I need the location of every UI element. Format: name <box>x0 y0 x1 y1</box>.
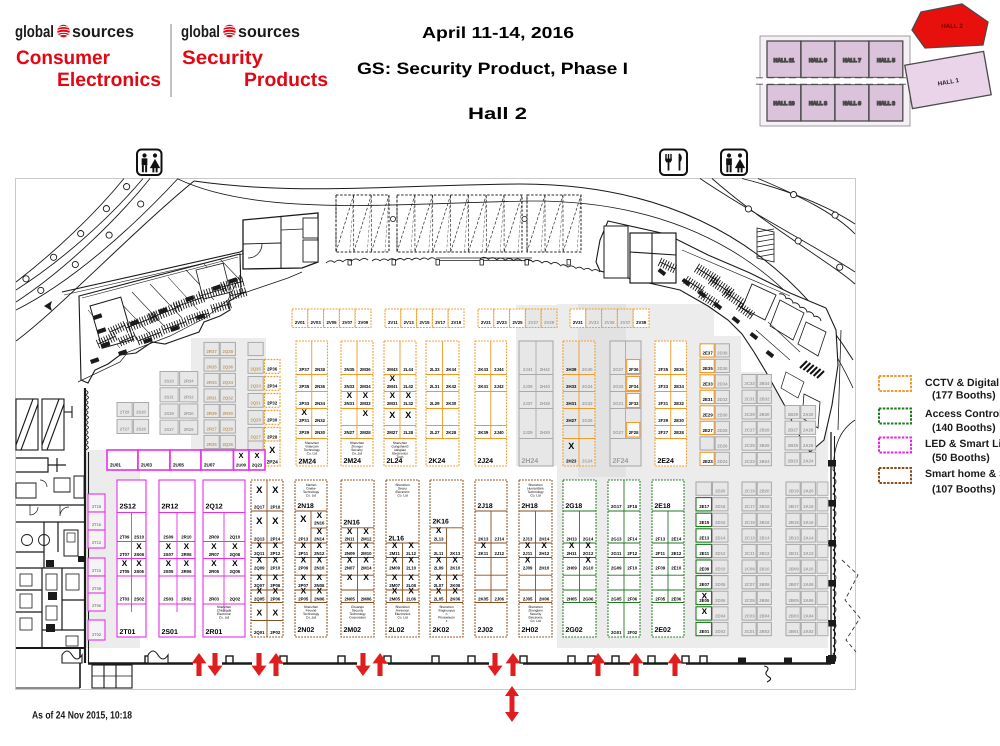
svg-text:2P33: 2P33 <box>299 401 310 406</box>
svg-text:2R08: 2R08 <box>181 552 192 557</box>
svg-text:X: X <box>232 542 238 551</box>
svg-text:2K28: 2K28 <box>446 430 457 435</box>
svg-text:2B09: 2B09 <box>789 567 800 572</box>
svg-text:X: X <box>436 587 442 596</box>
svg-text:2G13: 2G13 <box>611 537 622 542</box>
svg-text:2C15: 2C15 <box>745 520 756 525</box>
svg-text:2G32: 2G32 <box>582 401 593 406</box>
svg-text:2Q17: 2Q17 <box>254 504 265 509</box>
svg-text:X: X <box>301 587 307 596</box>
svg-text:2P35: 2P35 <box>299 384 310 389</box>
svg-text:2D16: 2D16 <box>715 520 726 525</box>
svg-text:2E13: 2E13 <box>699 535 710 540</box>
svg-text:2G31: 2G31 <box>613 401 624 406</box>
svg-text:2K06: 2K06 <box>450 596 461 601</box>
svg-text:2Q05: 2Q05 <box>254 596 265 601</box>
svg-text:2J39: 2J39 <box>523 384 533 389</box>
svg-text:2S02: 2S02 <box>134 597 145 602</box>
svg-text:X: X <box>317 541 323 550</box>
svg-text:2B16: 2B16 <box>759 520 770 525</box>
svg-text:2C33: 2C33 <box>745 381 756 386</box>
svg-text:2F09: 2F09 <box>655 566 665 571</box>
svg-text:X: X <box>452 573 458 582</box>
svg-text:2C11: 2C11 <box>745 551 756 556</box>
svg-text:2B04: 2B04 <box>759 613 770 618</box>
svg-text:2V13: 2V13 <box>404 320 415 325</box>
svg-text:2L27: 2L27 <box>430 430 440 435</box>
svg-text:X: X <box>273 573 279 582</box>
svg-text:X: X <box>317 511 323 520</box>
svg-text:X: X <box>702 607 708 616</box>
svg-text:2V25: 2V25 <box>512 320 523 325</box>
svg-text:2V27: 2V27 <box>528 320 539 325</box>
svg-text:2S27: 2S27 <box>164 427 174 432</box>
svg-text:2J14: 2J14 <box>495 537 505 542</box>
svg-text:2H09: 2H09 <box>566 566 577 571</box>
svg-text:2R27: 2R27 <box>206 426 217 431</box>
svg-text:2C03: 2C03 <box>745 613 756 618</box>
svg-text:2M31: 2M31 <box>387 401 398 406</box>
svg-text:X: X <box>392 541 398 550</box>
svg-text:2Q36: 2Q36 <box>223 364 234 369</box>
svg-text:2T06: 2T06 <box>92 603 102 608</box>
svg-text:HALL 9: HALL 9 <box>809 58 827 64</box>
svg-text:HALL 5: HALL 5 <box>877 58 895 64</box>
svg-text:2G27: 2G27 <box>613 430 624 435</box>
svg-text:X: X <box>408 541 414 550</box>
svg-text:2C29: 2C29 <box>745 412 756 417</box>
svg-text:X: X <box>525 541 531 550</box>
svg-text:X: X <box>238 451 243 460</box>
svg-text:2V23: 2V23 <box>497 320 508 325</box>
svg-text:2A08: 2A08 <box>803 582 814 587</box>
svg-text:X: X <box>541 541 547 550</box>
svg-text:HALL 10: HALL 10 <box>774 101 795 107</box>
svg-text:2P36: 2P36 <box>267 366 278 371</box>
svg-text:X: X <box>256 608 262 618</box>
svg-text:2D30: 2D30 <box>717 412 728 417</box>
svg-text:2R05: 2R05 <box>209 569 220 574</box>
svg-text:2J24: 2J24 <box>478 458 494 465</box>
svg-text:2R37: 2R37 <box>206 349 217 354</box>
svg-text:2J44: 2J44 <box>494 367 504 372</box>
svg-text:2T12: 2T12 <box>92 540 102 545</box>
svg-text:(107 Booths): (107 Booths) <box>932 484 996 496</box>
svg-text:2S28: 2S28 <box>136 426 146 431</box>
svg-text:2S10: 2S10 <box>134 535 145 540</box>
svg-text:X: X <box>405 410 411 420</box>
svg-text:2A18: 2A18 <box>803 504 814 509</box>
svg-text:HALL 2: HALL 2 <box>941 23 963 30</box>
svg-text:X: X <box>136 559 142 568</box>
svg-text:2P29: 2P29 <box>299 430 310 435</box>
svg-text:X: X <box>436 526 442 535</box>
svg-text:2E31: 2E31 <box>703 397 714 402</box>
svg-text:2V35: 2V35 <box>604 320 615 325</box>
svg-text:2C27: 2C27 <box>745 428 756 433</box>
svg-text:X: X <box>585 541 591 550</box>
svg-text:2S09: 2S09 <box>163 535 174 540</box>
svg-text:2Q09: 2Q09 <box>254 566 265 571</box>
svg-text:2Q29: 2Q29 <box>250 417 261 422</box>
svg-text:2R28: 2R28 <box>184 427 195 432</box>
svg-text:2S05: 2S05 <box>163 569 174 574</box>
svg-text:2B13: 2B13 <box>789 535 800 540</box>
svg-text:2R34: 2R34 <box>184 379 195 384</box>
svg-text:2D36: 2D36 <box>717 366 728 371</box>
svg-text:2B10: 2B10 <box>759 567 770 572</box>
svg-text:2J09: 2J09 <box>523 566 533 571</box>
svg-text:X: X <box>392 573 398 582</box>
svg-text:X: X <box>301 573 307 582</box>
svg-text:2S08: 2S08 <box>134 552 145 557</box>
svg-text:2G05: 2G05 <box>611 596 622 601</box>
svg-text:2R07: 2R07 <box>209 552 220 557</box>
svg-text:GS: Security Product, Phase I: GS: Security Product, Phase I <box>357 60 628 78</box>
svg-text:Co. Ltd: Co. Ltd <box>397 616 408 620</box>
svg-text:2E34: 2E34 <box>674 384 685 389</box>
svg-text:HALL 7: HALL 7 <box>843 58 861 64</box>
svg-text:2K02: 2K02 <box>433 627 450 634</box>
svg-text:global: global <box>181 23 220 41</box>
svg-text:X: X <box>363 527 369 536</box>
svg-text:Corporation: Corporation <box>349 616 366 620</box>
svg-text:2T03: 2T03 <box>120 597 130 602</box>
svg-text:2S33: 2S33 <box>164 379 174 384</box>
svg-text:2R06: 2R06 <box>181 569 192 574</box>
svg-text:2C09: 2C09 <box>745 567 756 572</box>
svg-text:X: X <box>389 410 395 420</box>
svg-text:2R01: 2R01 <box>206 629 223 636</box>
svg-text:2A06: 2A06 <box>803 598 814 603</box>
svg-text:global: global <box>15 23 54 41</box>
svg-text:2B32: 2B32 <box>759 396 770 401</box>
svg-text:Electronics: Electronics <box>57 69 161 91</box>
svg-text:Products: Products <box>244 69 328 91</box>
svg-text:2C05: 2C05 <box>745 598 756 603</box>
svg-text:2E27: 2E27 <box>703 428 714 433</box>
svg-text:X: X <box>363 556 369 565</box>
svg-text:2E30: 2E30 <box>674 418 685 423</box>
svg-text:2V09: 2V09 <box>358 320 369 325</box>
svg-text:2P05: 2P05 <box>298 596 309 601</box>
svg-text:2R12: 2R12 <box>162 504 179 511</box>
svg-text:2C25: 2C25 <box>745 443 756 448</box>
svg-text:2E12: 2E12 <box>671 551 682 556</box>
svg-text:2K10: 2K10 <box>450 566 461 571</box>
svg-text:2V21: 2V21 <box>481 320 492 325</box>
svg-text:2N07: 2N07 <box>344 566 355 571</box>
svg-text:2M27: 2M27 <box>387 430 398 435</box>
svg-text:X: X <box>317 573 323 582</box>
svg-text:2N18: 2N18 <box>298 503 314 510</box>
svg-text:2F02: 2F02 <box>627 630 637 635</box>
svg-text:2G02: 2G02 <box>566 627 583 634</box>
svg-text:2R09: 2R09 <box>209 535 220 540</box>
svg-text:2T07: 2T07 <box>120 552 130 557</box>
svg-text:2G34: 2G34 <box>582 384 593 389</box>
svg-text:HALL 11: HALL 11 <box>774 58 795 64</box>
svg-text:2B26: 2B26 <box>759 443 770 448</box>
svg-text:2D18: 2D18 <box>715 504 726 509</box>
svg-text:2A28: 2A28 <box>803 427 814 432</box>
svg-text:X: X <box>273 587 279 596</box>
svg-text:2F33: 2F33 <box>658 384 668 389</box>
svg-text:2L05: 2L05 <box>434 596 444 601</box>
svg-text:2E37: 2E37 <box>703 350 714 355</box>
svg-text:X: X <box>232 559 238 568</box>
svg-text:HALL 8: HALL 8 <box>809 101 827 107</box>
svg-text:2Q31: 2Q31 <box>250 400 261 405</box>
svg-text:2U01: 2U01 <box>110 463 121 468</box>
svg-text:2U09: 2U09 <box>236 463 247 468</box>
svg-text:As of 24 Nov 2015, 10:18: As of 24 Nov 2015, 10:18 <box>32 710 132 722</box>
svg-text:2G37: 2G37 <box>613 367 624 372</box>
svg-text:2V33: 2V33 <box>589 320 600 325</box>
svg-text:2N16: 2N16 <box>344 520 360 527</box>
svg-text:LED & Smart Lighting: LED & Smart Lighting <box>925 438 1000 450</box>
svg-text:2D04: 2D04 <box>715 613 726 618</box>
svg-text:2F11: 2F11 <box>656 551 666 556</box>
svg-text:X: X <box>392 587 398 596</box>
svg-text:2Q34: 2Q34 <box>223 380 234 385</box>
svg-text:2H18: 2H18 <box>522 503 538 510</box>
svg-text:X: X <box>300 514 307 525</box>
svg-text:X: X <box>363 409 369 418</box>
svg-text:2E14: 2E14 <box>671 537 682 542</box>
svg-text:X: X <box>408 587 414 596</box>
svg-text:2L24: 2L24 <box>387 458 403 465</box>
svg-text:X: X <box>317 527 323 536</box>
svg-text:2D28: 2D28 <box>717 428 728 433</box>
svg-text:2H42: 2H42 <box>540 367 551 372</box>
svg-text:2D14: 2D14 <box>715 535 726 540</box>
svg-text:2J37: 2J37 <box>523 401 533 406</box>
svg-text:2A10: 2A10 <box>803 567 814 572</box>
svg-text:2F34: 2F34 <box>629 384 639 389</box>
svg-text:Access Control: Access Control <box>925 408 1000 420</box>
svg-text:2N05: 2N05 <box>344 596 355 601</box>
svg-text:2D26: 2D26 <box>717 443 728 448</box>
svg-text:X: X <box>136 542 142 551</box>
svg-text:2F10: 2F10 <box>627 566 637 571</box>
svg-text:X: X <box>390 391 396 400</box>
svg-text:2F36: 2F36 <box>629 367 639 372</box>
svg-text:2D24: 2D24 <box>717 459 728 464</box>
svg-text:X: X <box>585 556 591 565</box>
svg-text:2T10: 2T10 <box>92 568 102 573</box>
svg-text:2M06: 2M06 <box>361 596 372 601</box>
svg-text:2E11: 2E11 <box>699 551 709 556</box>
svg-text:X: X <box>184 542 190 551</box>
svg-text:2B25: 2B25 <box>788 443 799 448</box>
svg-text:X: X <box>257 573 263 582</box>
svg-text:2M02: 2M02 <box>344 627 362 634</box>
svg-text:2B24: 2B24 <box>759 459 770 464</box>
svg-text:2E10: 2E10 <box>671 566 682 571</box>
svg-text:Co.,Ltd: Co.,Ltd <box>306 616 317 620</box>
svg-text:2J12: 2J12 <box>495 551 505 556</box>
svg-text:X: X <box>269 445 275 455</box>
svg-text:2H39: 2H39 <box>566 367 577 372</box>
svg-text:Security: Security <box>182 47 263 69</box>
svg-text:2F27: 2F27 <box>658 430 668 435</box>
svg-text:2F28: 2F28 <box>629 430 639 435</box>
svg-text:2F35: 2F35 <box>658 367 668 372</box>
svg-text:2P34: 2P34 <box>267 383 278 388</box>
svg-text:2L09: 2L09 <box>434 566 444 571</box>
svg-text:2E32: 2E32 <box>674 401 685 406</box>
svg-text:2G40: 2G40 <box>582 367 593 372</box>
svg-text:X: X <box>569 541 575 550</box>
svg-text:X: X <box>392 556 398 565</box>
svg-text:2L44: 2L44 <box>403 367 413 372</box>
svg-text:2E02: 2E02 <box>655 627 671 634</box>
svg-text:2H12: 2H12 <box>539 551 550 556</box>
svg-text:2F12: 2F12 <box>627 551 637 556</box>
svg-text:2F13: 2F13 <box>655 537 665 542</box>
svg-text:2F06: 2F06 <box>627 596 637 601</box>
svg-text:2P31: 2P31 <box>299 418 310 423</box>
svg-text:2V39: 2V39 <box>636 320 647 325</box>
svg-text:X: X <box>317 556 323 565</box>
svg-text:X: X <box>347 541 353 550</box>
svg-text:2V11: 2V11 <box>388 320 398 325</box>
svg-text:2R33: 2R33 <box>206 380 217 385</box>
svg-text:2T05: 2T05 <box>120 569 130 574</box>
svg-text:X: X <box>408 556 414 565</box>
svg-text:2M32: 2M32 <box>360 401 371 406</box>
svg-text:2B03: 2B03 <box>789 613 800 618</box>
svg-text:2N31: 2N31 <box>344 401 355 406</box>
svg-text:2B18: 2B18 <box>759 504 770 509</box>
svg-text:2E33: 2E33 <box>703 381 714 386</box>
svg-text:2K11: 2K11 <box>478 551 489 556</box>
svg-text:2M36: 2M36 <box>360 367 371 372</box>
svg-text:2M05: 2M05 <box>389 596 400 601</box>
svg-text:2T27: 2T27 <box>120 426 130 431</box>
svg-text:X: X <box>272 608 278 618</box>
svg-text:2B15: 2B15 <box>789 520 800 525</box>
svg-text:2N27: 2N27 <box>344 430 355 435</box>
svg-text:sources: sources <box>72 23 134 41</box>
svg-text:2Q26: 2Q26 <box>223 442 234 447</box>
svg-text:X: X <box>436 573 442 582</box>
svg-text:2Q10: 2Q10 <box>230 535 241 540</box>
svg-text:2H06: 2H06 <box>539 596 550 601</box>
svg-text:2L33: 2L33 <box>430 367 440 372</box>
svg-text:2L02: 2L02 <box>389 627 405 634</box>
svg-text:2L28: 2L28 <box>403 430 413 435</box>
svg-text:X: X <box>702 591 708 600</box>
svg-text:2A04: 2A04 <box>803 613 814 618</box>
svg-text:X: X <box>184 559 190 568</box>
svg-text:X: X <box>273 556 279 565</box>
svg-text:2M41: 2M41 <box>387 384 398 389</box>
svg-text:X: X <box>347 527 353 536</box>
svg-text:2Q28: 2Q28 <box>223 426 234 431</box>
svg-text:2N06: 2N06 <box>314 596 325 601</box>
svg-text:2G28: 2G28 <box>582 418 593 423</box>
svg-text:Co. Ltd: Co. Ltd <box>306 494 317 498</box>
svg-text:2A14: 2A14 <box>803 535 814 540</box>
svg-text:(177 Booths): (177 Booths) <box>932 390 996 402</box>
svg-text:X: X <box>481 541 487 550</box>
svg-text:2B17: 2B17 <box>789 504 800 509</box>
svg-text:2U05: 2U05 <box>173 463 184 468</box>
svg-text:2R02: 2R02 <box>181 597 192 602</box>
svg-text:X: X <box>256 485 263 496</box>
svg-text:2Q35: 2Q35 <box>250 366 261 371</box>
svg-text:2V01: 2V01 <box>295 320 306 325</box>
svg-text:2B23: 2B23 <box>788 459 799 464</box>
svg-text:X: X <box>347 391 353 400</box>
svg-text:2T02: 2T02 <box>92 632 102 637</box>
svg-text:2D06: 2D06 <box>715 598 726 603</box>
svg-text:X: X <box>272 516 279 527</box>
svg-text:2B20: 2B20 <box>759 489 770 494</box>
svg-text:Co. Ltd: Co. Ltd <box>397 494 408 498</box>
svg-text:2M09: 2M09 <box>389 566 400 571</box>
svg-text:X: X <box>272 485 279 496</box>
svg-text:2T01: 2T01 <box>120 629 136 636</box>
svg-text:2E09: 2E09 <box>699 567 710 572</box>
svg-text:(140 Booths): (140 Booths) <box>932 422 996 434</box>
svg-text:2R31: 2R31 <box>206 395 217 400</box>
svg-text:X: X <box>166 542 172 551</box>
svg-text:2F31: 2F31 <box>658 401 668 406</box>
svg-text:2N35: 2N35 <box>344 367 355 372</box>
svg-text:2K41: 2K41 <box>478 384 489 389</box>
svg-text:2B34: 2B34 <box>759 381 770 386</box>
svg-text:2B11: 2B11 <box>789 551 800 556</box>
svg-text:X: X <box>256 516 263 527</box>
svg-text:2A12: 2A12 <box>803 551 814 556</box>
svg-text:2B07: 2B07 <box>789 582 800 587</box>
svg-text:2B02: 2B02 <box>759 629 770 634</box>
svg-text:2B05: 2B05 <box>789 598 800 603</box>
svg-text:2C23: 2C23 <box>745 459 756 464</box>
svg-text:X: X <box>436 556 442 565</box>
svg-text:2M24: 2M24 <box>299 459 317 466</box>
svg-text:Co. Ltd: Co. Ltd <box>530 619 541 623</box>
svg-text:X: X <box>363 573 369 582</box>
svg-text:2R03: 2R03 <box>209 597 220 602</box>
svg-text:2E07: 2E07 <box>699 582 710 587</box>
svg-text:2E23: 2E23 <box>703 459 714 464</box>
svg-text:2V29: 2V29 <box>544 320 555 325</box>
svg-text:2H30: 2H30 <box>540 430 551 435</box>
svg-text:2A24: 2A24 <box>803 459 814 464</box>
svg-text:2B27: 2B27 <box>788 427 799 432</box>
svg-text:X: X <box>452 587 458 596</box>
svg-text:2A16: 2A16 <box>803 520 814 525</box>
svg-text:2J05: 2J05 <box>523 596 533 601</box>
svg-text:X: X <box>406 391 412 400</box>
svg-text:X: X <box>166 559 172 568</box>
svg-text:2P02: 2P02 <box>270 630 281 635</box>
svg-text:2N16: 2N16 <box>314 521 325 526</box>
svg-text:2E24: 2E24 <box>658 458 674 465</box>
svg-text:2K05: 2K05 <box>478 596 489 601</box>
svg-text:X: X <box>390 374 396 383</box>
svg-text:2H24: 2H24 <box>522 458 539 465</box>
svg-text:2K43: 2K43 <box>478 367 489 372</box>
svg-text:2F05: 2F05 <box>655 596 665 601</box>
svg-text:2P06: 2P06 <box>270 596 281 601</box>
svg-text:2P10: 2P10 <box>270 566 281 571</box>
svg-text:2C17: 2C17 <box>745 504 756 509</box>
